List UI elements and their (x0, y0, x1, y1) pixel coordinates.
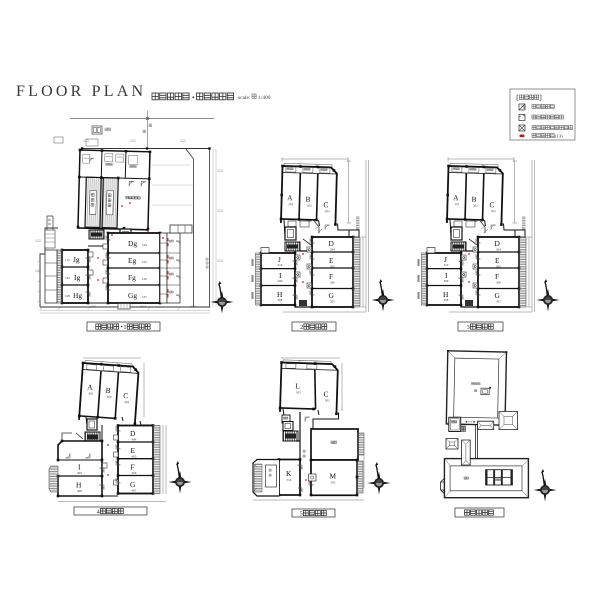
svg-text:305: 305 (496, 265, 501, 269)
svg-text:210: 210 (278, 263, 283, 267)
svg-text:510: 510 (287, 478, 292, 482)
svg-text:Hg: Hg (73, 291, 82, 300)
svg-text:306: 306 (496, 281, 501, 285)
svg-text:402: 402 (107, 395, 112, 399)
svg-text:308: 308 (444, 298, 449, 302)
svg-text:502: 502 (325, 398, 330, 402)
svg-text:201: 201 (288, 202, 293, 206)
svg-text:501: 501 (296, 390, 301, 394)
svg-text:L: L (295, 381, 300, 390)
svg-text:1: 1 (123, 324, 126, 331)
svg-text:C: C (489, 200, 494, 209)
svg-text:FLOOR PLAN: FLOOR PLAN (16, 83, 146, 100)
svg-text:303: 303 (491, 209, 496, 213)
svg-text:302: 302 (473, 204, 478, 208)
svg-text:B: B (305, 195, 310, 204)
svg-text:204: 204 (330, 248, 335, 252)
svg-text:309: 309 (444, 279, 449, 283)
svg-text:B: B (471, 195, 476, 204)
svg-text:310: 310 (444, 263, 449, 267)
svg-text:406: 406 (132, 471, 137, 475)
svg-text:C: C (323, 200, 328, 209)
svg-text:5: 5 (300, 510, 303, 517)
svg-text:107: 107 (142, 295, 147, 299)
svg-text:C: C (323, 389, 328, 398)
svg-text:301: 301 (454, 202, 459, 206)
svg-text:Gg: Gg (128, 291, 137, 300)
svg-text:Eg: Eg (128, 256, 137, 265)
svg-text:409: 409 (77, 471, 82, 475)
svg-text:108: 108 (65, 294, 70, 298)
svg-text:304: 304 (496, 248, 501, 252)
svg-text:M: M (330, 472, 337, 481)
svg-text:B: B (105, 386, 111, 395)
svg-text:405: 405 (132, 455, 137, 459)
svg-text:1/400: 1/400 (258, 95, 271, 101)
svg-text:407: 407 (132, 489, 137, 493)
svg-text:K: K (286, 469, 292, 478)
svg-text:503: 503 (331, 481, 336, 485)
svg-text:C: C (123, 391, 129, 400)
svg-text:Jg: Jg (73, 255, 80, 264)
svg-text:3: 3 (467, 324, 470, 331)
svg-text:2: 2 (300, 324, 303, 331)
svg-text:(13): (13) (555, 134, 563, 139)
svg-text:207: 207 (330, 300, 335, 304)
svg-text:202: 202 (307, 204, 312, 208)
svg-text:110: 110 (65, 258, 70, 262)
svg-text:104: 104 (142, 243, 147, 247)
svg-text:105: 105 (142, 260, 147, 264)
svg-text:404: 404 (132, 438, 137, 442)
svg-text:408: 408 (77, 489, 82, 493)
svg-text:307: 307 (496, 300, 501, 304)
svg-text:106: 106 (142, 277, 147, 281)
svg-text:205: 205 (330, 265, 335, 269)
svg-text:Ig: Ig (74, 273, 80, 282)
svg-text:203: 203 (325, 209, 330, 213)
svg-text:109: 109 (65, 276, 70, 280)
svg-text:Dg: Dg (128, 239, 137, 248)
svg-text:403: 403 (124, 400, 129, 404)
svg-text:A: A (287, 193, 293, 202)
svg-text:scale:: scale: (238, 95, 251, 101)
svg-text:208: 208 (278, 298, 283, 302)
svg-text:206: 206 (330, 281, 335, 285)
svg-text:A: A (453, 193, 459, 202)
svg-text:401: 401 (88, 391, 93, 395)
svg-text:Fg: Fg (128, 273, 136, 282)
svg-text:209: 209 (278, 279, 283, 283)
